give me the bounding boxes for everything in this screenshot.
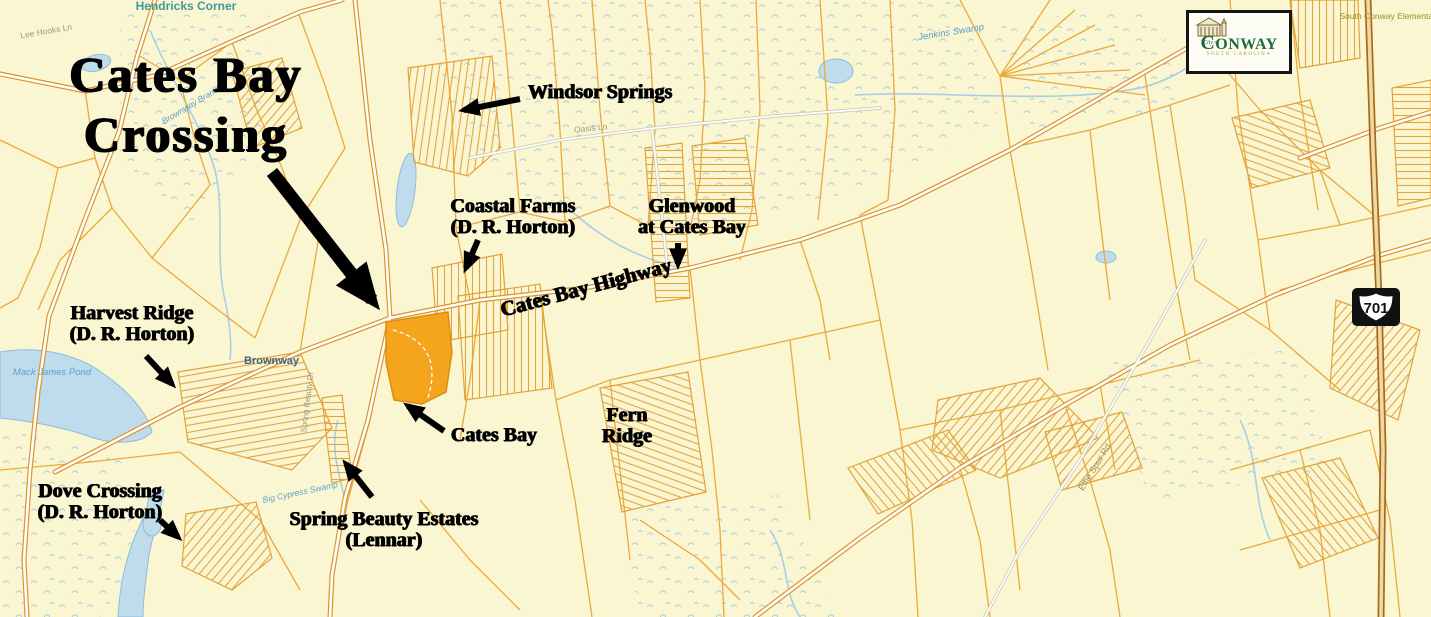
- maplabel-hendricks-corner: Hendricks Corner: [136, 0, 237, 13]
- map-screenshot: { "title": {"line1": "Cates Bay", "line2…: [0, 0, 1431, 617]
- label-dove-crossing: Dove Crossing (D. R. Horton): [38, 481, 162, 523]
- conway-logo: City of CONWAY SOUTH CAROLINA: [1186, 10, 1292, 74]
- label-windsor-springs: Windsor Springs: [528, 82, 672, 103]
- title-line2: Crossing: [69, 104, 302, 164]
- logo-city-of: City of: [1203, 40, 1219, 46]
- label-cates-bay: Cates Bay: [451, 425, 537, 446]
- map-title: Cates Bay Crossing: [69, 44, 302, 164]
- label-glenwood: Glenwood at Cates Bay: [638, 196, 746, 238]
- label-coastal-farms: Coastal Farms (D. R. Horton): [451, 196, 576, 238]
- windsor-springs-lots: [408, 56, 500, 176]
- route-701-shield: 701: [1352, 288, 1400, 326]
- pond: [1096, 251, 1116, 263]
- parcel-map: 701 Cates Bay Crossing Windsor Springs C…: [0, 0, 1431, 617]
- lots: [1392, 80, 1431, 206]
- label-spring-beauty: Spring Beauty Estates (Lennar): [290, 509, 479, 551]
- maplabel-brownway: Brownway: [244, 355, 299, 367]
- cates-bay-crossing-site: [386, 312, 452, 404]
- title-line1: Cates Bay: [69, 44, 302, 104]
- shield-number: 701: [1363, 300, 1388, 317]
- label-harvest-ridge: Harvest Ridge (D. R. Horton): [70, 303, 194, 345]
- maplabel-school: South Conway Elementary School: [1339, 12, 1431, 22]
- maplabel-mack-james-pond: Mack James Pond: [13, 368, 91, 379]
- label-fern-ridge: Fern Ridge: [602, 405, 652, 447]
